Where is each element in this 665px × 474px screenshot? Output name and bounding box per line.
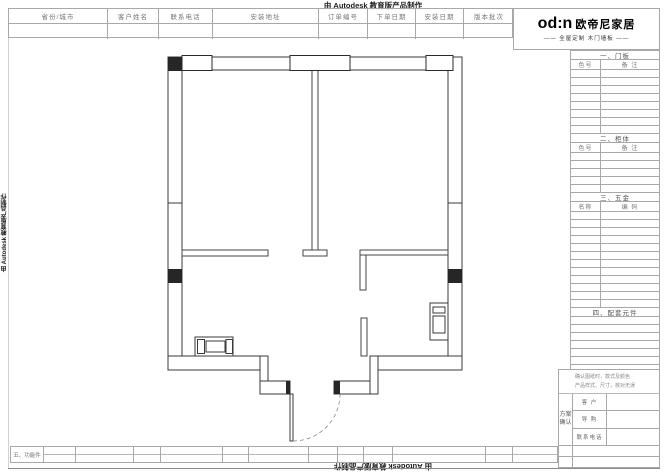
door-swing-arc [293, 394, 340, 441]
window-left [182, 56, 212, 71]
door-leaf [290, 394, 293, 441]
entry-door [286, 381, 340, 441]
door-jamb-right [334, 381, 340, 394]
drawing-sheet: 由 Autodesk 教育版产品制作 由 Autodesk 教育版产品制作 由 … [0, 0, 665, 474]
window-center [290, 56, 350, 71]
interior-walls [182, 70, 448, 356]
floor-plan [0, 0, 665, 474]
appliance-fixture [430, 303, 448, 340]
window-right [426, 56, 453, 71]
door-jamb-left [286, 381, 290, 394]
cabinet-fixture [195, 337, 233, 356]
